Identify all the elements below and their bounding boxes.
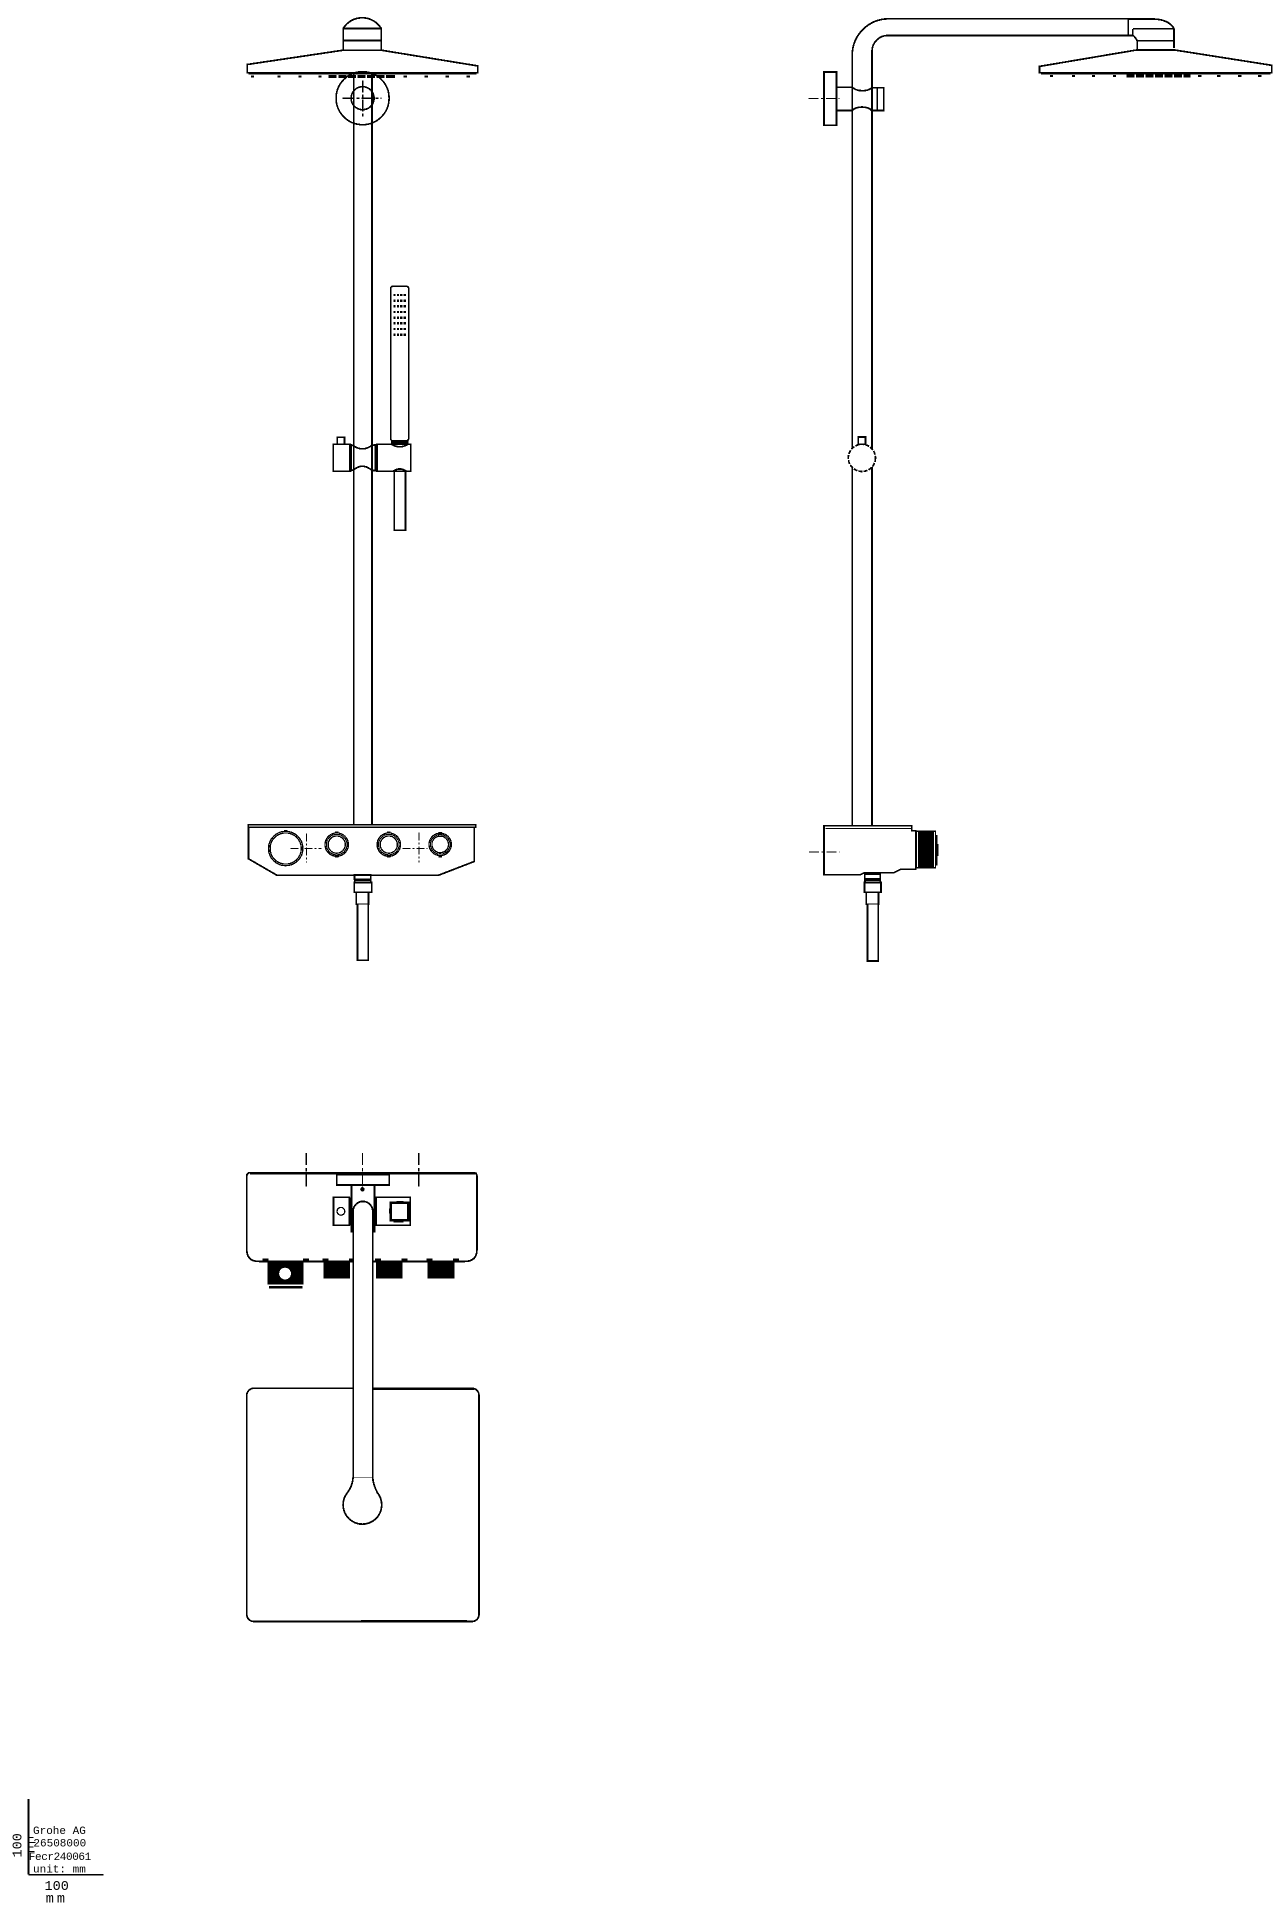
svg-text:Fecr240061: Fecr240061 <box>29 1852 92 1864</box>
svg-text:26508000: 26508000 <box>33 1839 86 1851</box>
svg-text:Grohe AG: Grohe AG <box>33 1826 86 1838</box>
svg-text:mm: mm <box>46 1892 68 1907</box>
svg-text:unit: mm: unit: mm <box>33 1865 86 1877</box>
svg-text:100: 100 <box>12 1833 27 1857</box>
